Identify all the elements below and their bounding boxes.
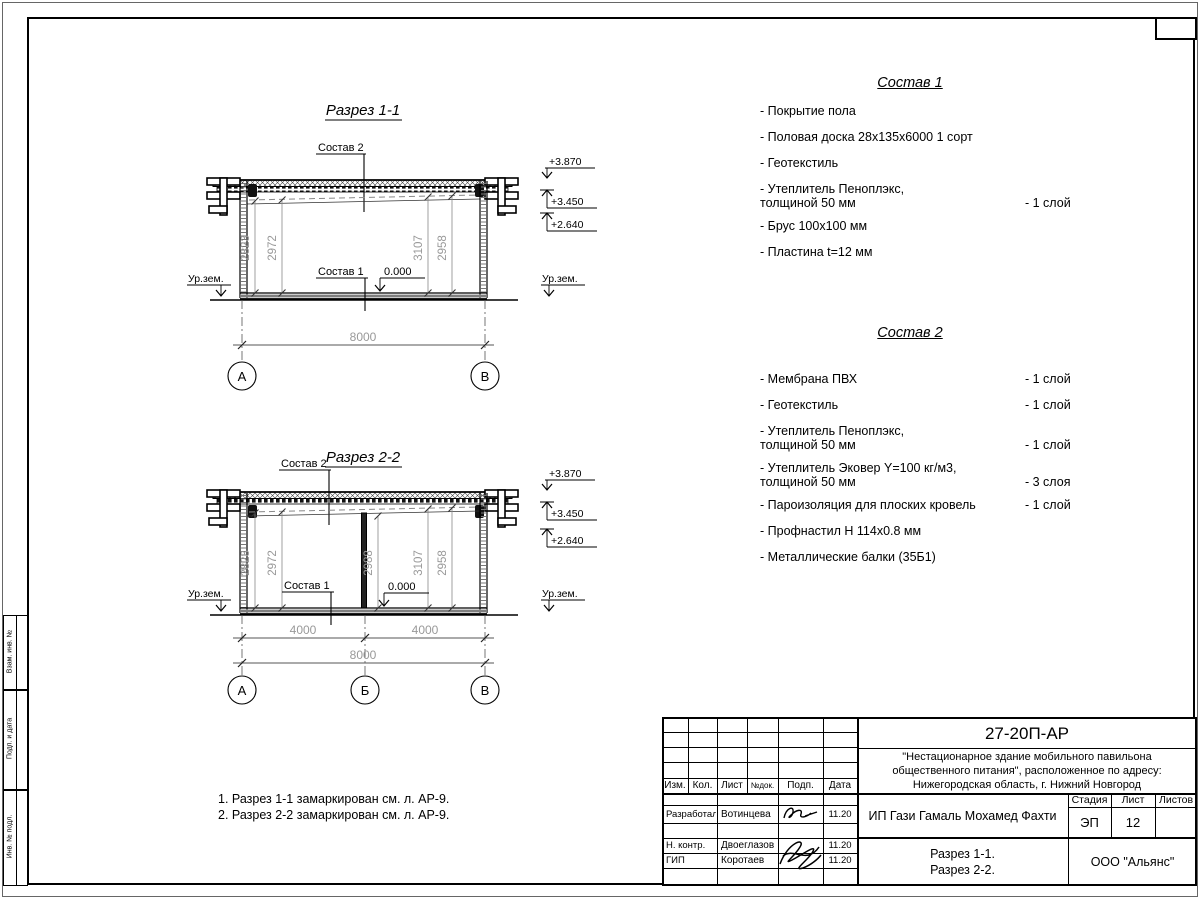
item-name: - Брус 100х100 мм xyxy=(760,219,867,233)
list-item: - Половая доска 28х135х6000 1 сорт xyxy=(760,130,1100,144)
stamp-label: Инв. № подл. xyxy=(7,787,14,887)
sheet-label: Лист xyxy=(1111,793,1155,807)
svg-text:0.000: 0.000 xyxy=(384,266,412,278)
list-item: - Металлические балки (35Б1) xyxy=(760,550,1100,564)
section1-level-3870: +3.870 xyxy=(542,156,595,178)
top-right-stamp-box xyxy=(1155,17,1197,40)
svg-text:2988: 2988 xyxy=(363,550,375,576)
svg-text:2823: 2823 xyxy=(240,550,252,576)
item-name: - Металлические балки (35Б1) xyxy=(760,550,936,564)
svg-text:+3.870: +3.870 xyxy=(549,156,582,168)
svg-text:3107: 3107 xyxy=(413,550,425,576)
svg-text:Ур.зем.: Ур.зем. xyxy=(188,588,224,600)
client-name: ИП Гази Гамаль Мохамед Фахти xyxy=(857,794,1068,837)
svg-text:+2.640: +2.640 xyxy=(551,219,584,231)
section2-axis-b: Б xyxy=(351,676,379,704)
svg-text:+3.450: +3.450 xyxy=(551,508,584,520)
list-item: - Утеплитель Пеноплэкс, толщиной 50 мм- … xyxy=(760,182,1100,210)
item-name: - Профнастил Н 114х0.8 мм xyxy=(760,524,921,538)
svg-text:В: В xyxy=(481,369,490,384)
date-gip: 11.20 xyxy=(823,853,857,868)
svg-text:+2.640: +2.640 xyxy=(551,535,584,547)
list-item: - Пластина t=12 мм xyxy=(760,245,1100,259)
section2-axis-a: А xyxy=(228,676,256,704)
svg-text:4000: 4000 xyxy=(412,623,439,637)
project-name: "Нестационарное здание мобильного павиль… xyxy=(859,749,1195,793)
signature-icon xyxy=(774,834,826,876)
section1-width-dim: 8000 xyxy=(233,300,494,362)
section1-axis-b: В xyxy=(471,362,499,390)
item-qty: - 1 слой xyxy=(1025,372,1071,386)
section-1-1-drawing: Разрез 1-1 Состав 2 xyxy=(185,85,615,405)
section2-dim-4000: 4000 4000 xyxy=(233,615,494,676)
stage-label: Стадия xyxy=(1068,793,1111,807)
section2-left-bracket xyxy=(207,490,240,527)
role-gip: ГИП xyxy=(663,853,716,868)
item-qty: - 1 слой xyxy=(1025,498,1071,512)
list-item: - Профнастил Н 114х0.8 мм xyxy=(760,524,1100,538)
svg-text:0.000: 0.000 xyxy=(388,581,416,593)
stamp-label: Взам. инв. № xyxy=(7,601,14,701)
svg-text:8000: 8000 xyxy=(350,648,377,662)
left-stamp-strip: Взам. инв. № Подп. и дата Инв. № подл. xyxy=(3,615,28,886)
svg-text:Ур.зем.: Ур.зем. xyxy=(542,273,578,285)
svg-text:2958: 2958 xyxy=(437,550,449,576)
item-name: - Геотекстиль xyxy=(760,398,838,412)
svg-text:+3.450: +3.450 xyxy=(551,196,584,208)
list-item: - Утеплитель Эковер Y=100 кг/м3, толщино… xyxy=(760,461,1100,489)
role-razrabotal: Разработал xyxy=(663,805,716,823)
list-item: - Утеплитель Пеноплэкс, толщиной 50 мм- … xyxy=(760,424,1100,452)
sostav-2-title: Состав 2 xyxy=(760,326,1060,340)
list-item: - Геотекстиль xyxy=(760,156,1100,170)
sheet-number: 12 xyxy=(1111,807,1155,837)
svg-text:2972: 2972 xyxy=(267,550,279,576)
roof-label: Состав 2 xyxy=(281,458,327,470)
list-item: - Мембрана ПВХ- 1 слой xyxy=(760,372,1100,386)
col-header-kol: Кол. xyxy=(688,778,717,793)
section1-zero-mark: 0.000 xyxy=(375,266,425,291)
section2-right-bracket xyxy=(485,490,518,527)
roof-label: Состав 2 xyxy=(318,142,364,154)
section1-level-3450: +3.450 xyxy=(540,190,597,208)
svg-text:2823: 2823 xyxy=(240,235,252,261)
svg-text:А: А xyxy=(238,683,247,698)
section1-ground-right: Ур.зем. xyxy=(541,273,585,296)
section1-level-2640: +2.640 xyxy=(540,213,597,231)
drawing-sheet: Взам. инв. № Подп. и дата Инв. № подл. Р… xyxy=(0,0,1200,900)
item-name: - Мембрана ПВХ xyxy=(760,372,857,386)
sostav-1-list: Состав 1 - Покрытие пола - Половая доска… xyxy=(760,76,1100,271)
section2-title: Разрез 2-2 xyxy=(326,449,401,466)
section2-zero-mark: 0.000 xyxy=(379,581,429,606)
col-header-podp: Подп. xyxy=(778,778,823,793)
sheets-label: Листов xyxy=(1155,793,1197,807)
item-qty: - 1 слой xyxy=(1025,398,1071,412)
item-name: - Утеплитель Эковер Y=100 кг/м3, толщино… xyxy=(760,461,956,489)
date-razrabotal: 11.20 xyxy=(823,805,857,823)
svg-text:+3.870: +3.870 xyxy=(549,468,582,480)
item-name: - Пластина t=12 мм xyxy=(760,245,873,259)
section2-floor xyxy=(210,608,518,615)
date-nkontr: 11.20 xyxy=(823,838,857,853)
list-item: - Геотекстиль- 1 слой xyxy=(760,398,1100,412)
notes: 1. Разрез 1-1 замаркирован см. л. АР-9. … xyxy=(218,792,449,823)
col-header-data: Дата xyxy=(823,778,857,793)
stamp-cell-divider xyxy=(16,616,17,689)
svg-text:А: А xyxy=(238,369,247,384)
signature-icon xyxy=(780,804,822,823)
svg-text:Состав 1: Состав 1 xyxy=(318,266,364,278)
section1-axis-a: А xyxy=(228,362,256,390)
section-2-2-drawing: Разрез 2-2 Состав 2 xyxy=(185,443,615,735)
svg-text:4000: 4000 xyxy=(290,623,317,637)
stamp-cell-divider xyxy=(16,791,17,885)
item-qty: - 1 слой xyxy=(1025,196,1071,210)
section2-level-2640: +2.640 xyxy=(540,529,597,547)
svg-text:2972: 2972 xyxy=(267,235,279,261)
svg-text:2958: 2958 xyxy=(437,235,449,261)
item-name: - Пароизоляция для плоских кровель xyxy=(760,498,976,512)
role-nkontr: Н. контр. xyxy=(663,838,716,853)
section2-axis-v: В xyxy=(471,676,499,704)
item-name: - Геотекстиль xyxy=(760,156,838,170)
section2-inner-dim-labels: 2823 2972 2988 3107 2958 xyxy=(240,550,449,576)
name-dvoeglazov: Двоеглазов xyxy=(718,838,777,853)
company-name: ООО "Альянс" xyxy=(1068,839,1197,884)
section1-left-bracket xyxy=(207,178,240,215)
col-header-ndok: №док. xyxy=(747,778,778,793)
name-votintseva: Вотинцева xyxy=(718,805,777,823)
stage-value: ЭП xyxy=(1068,807,1111,837)
sostav-1-title: Состав 1 xyxy=(760,76,1060,90)
list-item: - Пароизоляция для плоских кровель- 1 сл… xyxy=(760,498,1100,512)
sheet-title: Разрез 1-1. Разрез 2-2. xyxy=(857,839,1068,884)
item-name: - Покрытие пола xyxy=(760,104,856,118)
section1-title: Разрез 1-1 xyxy=(326,102,400,119)
section1-floor xyxy=(210,293,518,300)
stamp-cell-podp: Подп. и дата xyxy=(3,690,28,790)
section1-ground-left: Ур.зем. xyxy=(187,273,231,296)
col-header-list: Лист xyxy=(717,778,747,793)
list-item: - Брус 100х100 мм xyxy=(760,219,1100,233)
section2-level-3450: +3.450 xyxy=(540,502,597,520)
title-block: Изм. Кол. Лист №док. Подп. Дата Разработ… xyxy=(662,717,1197,886)
svg-text:Ур.зем.: Ур.зем. xyxy=(542,588,578,600)
svg-text:Ур.зем.: Ур.зем. xyxy=(188,273,224,285)
stamp-cell-divider xyxy=(16,691,17,789)
name-korotaev: Коротаев xyxy=(718,853,777,868)
item-name: - Утеплитель Пеноплэкс, толщиной 50 мм xyxy=(760,424,904,452)
svg-text:3107: 3107 xyxy=(413,235,425,261)
item-qty: - 1 слой xyxy=(1025,438,1071,452)
section1-inner-dim-labels: 2823 2972 3107 2958 xyxy=(240,235,449,261)
sostav-2-list: Состав 2 - Мембрана ПВХ- 1 слой - Геотек… xyxy=(760,326,1100,576)
svg-text:8000: 8000 xyxy=(350,330,377,344)
section2-floor-leader: Состав 1 xyxy=(282,580,334,625)
section2-ground-right: Ур.зем. xyxy=(541,588,585,611)
section2-dim-8000: 8000 xyxy=(233,648,494,667)
section2-ground-left: Ур.зем. xyxy=(187,588,231,611)
list-item: - Покрытие пола xyxy=(760,104,1100,118)
section1-right-bracket xyxy=(485,178,518,215)
item-name: - Половая доска 28х135х6000 1 сорт xyxy=(760,130,973,144)
stamp-label: Подп. и дата xyxy=(7,689,14,789)
note-line: 1. Разрез 1-1 замаркирован см. л. АР-9. xyxy=(218,792,449,808)
item-name: - Утеплитель Пеноплэкс, толщиной 50 мм xyxy=(760,182,904,210)
stamp-cell-vzam: Взам. инв. № xyxy=(3,615,28,690)
section1-roof xyxy=(213,180,512,204)
col-header-izm: Изм. xyxy=(662,778,688,793)
note-line: 2. Разрез 2-2 замаркирован см. л. АР-9. xyxy=(218,808,449,824)
section1-floor-leader: Состав 1 xyxy=(316,266,368,311)
stamp-cell-inv: Инв. № подл. xyxy=(3,790,28,886)
svg-text:Б: Б xyxy=(361,683,370,698)
section2-level-3870: +3.870 xyxy=(542,468,595,490)
doc-number: 27-20П-АР xyxy=(857,719,1197,748)
item-qty: - 3 слоя xyxy=(1025,475,1070,489)
svg-text:В: В xyxy=(481,683,490,698)
svg-text:Состав 1: Состав 1 xyxy=(284,580,330,592)
